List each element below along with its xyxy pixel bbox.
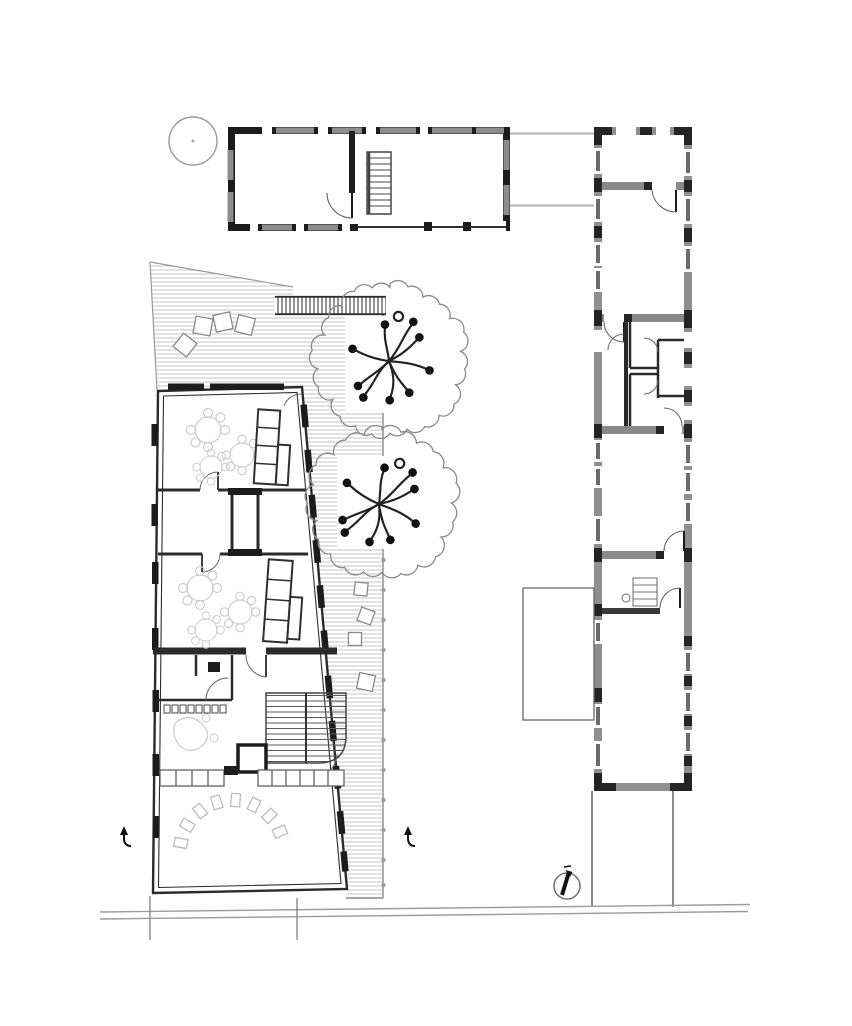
stepping-square <box>354 582 368 596</box>
window-opening <box>656 127 670 135</box>
elevator <box>238 745 266 772</box>
post <box>463 222 471 231</box>
boardwalk-slats <box>275 296 386 315</box>
stepping-square <box>193 316 213 336</box>
cabinet-row-left <box>160 770 224 786</box>
site-plan-svg <box>0 0 852 1026</box>
chair <box>174 837 188 848</box>
floor-plan-page <box>0 0 852 1026</box>
stepping-square <box>213 312 233 332</box>
north-building <box>228 126 511 232</box>
stepping-square <box>357 673 376 692</box>
stepping-square <box>235 315 256 336</box>
road-edge-lines <box>100 905 750 920</box>
shaft-block <box>228 549 262 556</box>
entrance-arrow-court <box>404 826 415 846</box>
round-tree-symbol <box>169 117 217 165</box>
boardwalk <box>275 296 386 315</box>
covered-link-lines <box>510 134 594 206</box>
post <box>424 222 432 231</box>
east-building <box>523 127 692 907</box>
cabinet-block <box>224 766 238 775</box>
north-wall-sill <box>168 384 204 391</box>
window-opening <box>616 127 636 135</box>
chair <box>231 793 241 807</box>
entrance-arrow-west <box>120 826 131 846</box>
thick-wall <box>153 648 337 655</box>
north-indicator <box>554 866 580 899</box>
fixture-block <box>208 662 220 672</box>
annex-outline <box>523 588 594 720</box>
divider-wall <box>349 131 355 193</box>
ladder <box>367 152 391 214</box>
stepping-square <box>349 633 362 646</box>
stair <box>266 693 346 763</box>
shaft-block <box>228 488 262 495</box>
north-wall-sill <box>210 384 284 391</box>
cabinet-row-right <box>258 770 344 786</box>
